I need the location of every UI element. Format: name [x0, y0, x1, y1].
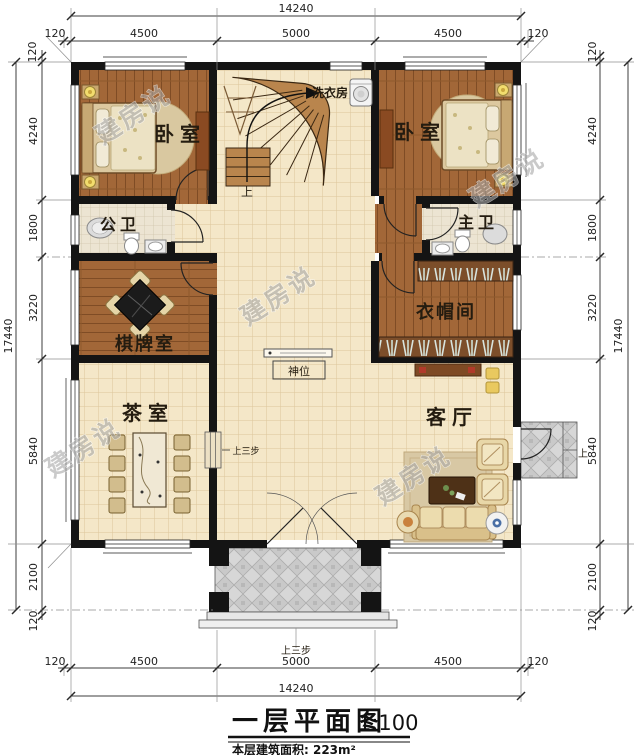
dim-right-total: 17440 [612, 319, 625, 354]
tea-room-label: 茶室 [122, 401, 174, 425]
floor-area-note: 本层建筑面积: 223m² [232, 742, 356, 755]
dim-top-seg: 4500 [130, 27, 158, 40]
bedroom-right-label: 卧室 [394, 120, 446, 144]
stool [486, 368, 499, 379]
pillow [486, 106, 499, 131]
dim-right-seg: 2100 [586, 563, 599, 591]
dim-left-seg: 2100 [27, 563, 40, 591]
dim-bottom-seg: 4500 [434, 655, 462, 668]
dim-right-seg: 120 [586, 42, 599, 63]
porch-column [361, 546, 381, 566]
dim-bottom-seg: 120 [45, 655, 66, 668]
dim-right-seg: 120 [586, 611, 599, 632]
living-room-label: 客厅 [425, 405, 478, 429]
porch-column [209, 592, 229, 612]
corridor-left-floor [175, 204, 217, 261]
dim-bottom-seg: 120 [528, 655, 549, 668]
dim-left-seg: 120 [27, 611, 40, 632]
dim-bottom-total: 14240 [279, 682, 314, 695]
dim-bottom-seg: 4500 [130, 655, 158, 668]
drawing-scale: 1:100 [358, 711, 419, 735]
stairs-up-label: 上 [241, 185, 253, 199]
porch-column [361, 592, 381, 612]
bedroom-left-label: 卧室 [154, 122, 206, 146]
laundry-label: 洗衣房 [312, 85, 348, 100]
wardrobe [380, 110, 393, 168]
dim-left-seg: 1800 [27, 214, 40, 242]
dim-top-seg: 120 [528, 27, 549, 40]
side-porch [521, 422, 577, 478]
dim-top-seg: 5000 [282, 27, 310, 40]
corridor-right-floor [375, 204, 422, 253]
master-bath-label: 主卫 [458, 213, 498, 232]
tea-steps-label: 上三步 [232, 446, 259, 457]
porch-step-1 [207, 612, 389, 620]
dim-right-seg: 1800 [586, 214, 599, 242]
front-porch [199, 546, 397, 648]
dim-bottom-seg: 5000 [282, 655, 310, 668]
dim-left-seg: 3220 [27, 294, 40, 322]
floor-plan-svg: 卧室 卧室 洗衣房 公卫 主卫 棋牌室 衣帽间 茶室 客厅 神位 上 上三步 上… [0, 0, 640, 755]
dimensions-top: 14240 120 4500 5000 4500 120 [45, 2, 549, 70]
shrine-label: 神位 [288, 364, 310, 378]
porch-column [209, 546, 229, 566]
cloak-room-label: 衣帽间 [416, 301, 476, 323]
porch-step-2 [199, 620, 397, 628]
dim-left-seg: 4240 [27, 117, 40, 145]
wardrobe-rack [418, 261, 513, 281]
dim-right-seg: 5840 [586, 437, 599, 465]
dim-right-seg: 3220 [586, 294, 599, 322]
title-block: 一层平面图 1:100 本层建筑面积: 223m² [228, 707, 419, 755]
dim-right-seg: 4240 [586, 117, 599, 145]
dim-left-total: 17440 [2, 319, 15, 354]
dim-left-seg: 5840 [27, 437, 40, 465]
public-bath-label: 公卫 [100, 215, 140, 234]
floor-plan: 卧室 卧室 洗衣房 公卫 主卫 棋牌室 衣帽间 茶室 客厅 神位 上 上三步 上… [0, 0, 640, 755]
dim-top-total: 14240 [279, 2, 314, 15]
dim-top-seg: 4500 [434, 27, 462, 40]
pillow [486, 139, 499, 164]
stool [486, 382, 499, 393]
wardrobe-rack [379, 337, 513, 357]
dim-left-seg: 120 [26, 42, 39, 63]
dim-top-seg: 120 [45, 27, 66, 40]
chess-room-label: 棋牌室 [115, 333, 175, 355]
